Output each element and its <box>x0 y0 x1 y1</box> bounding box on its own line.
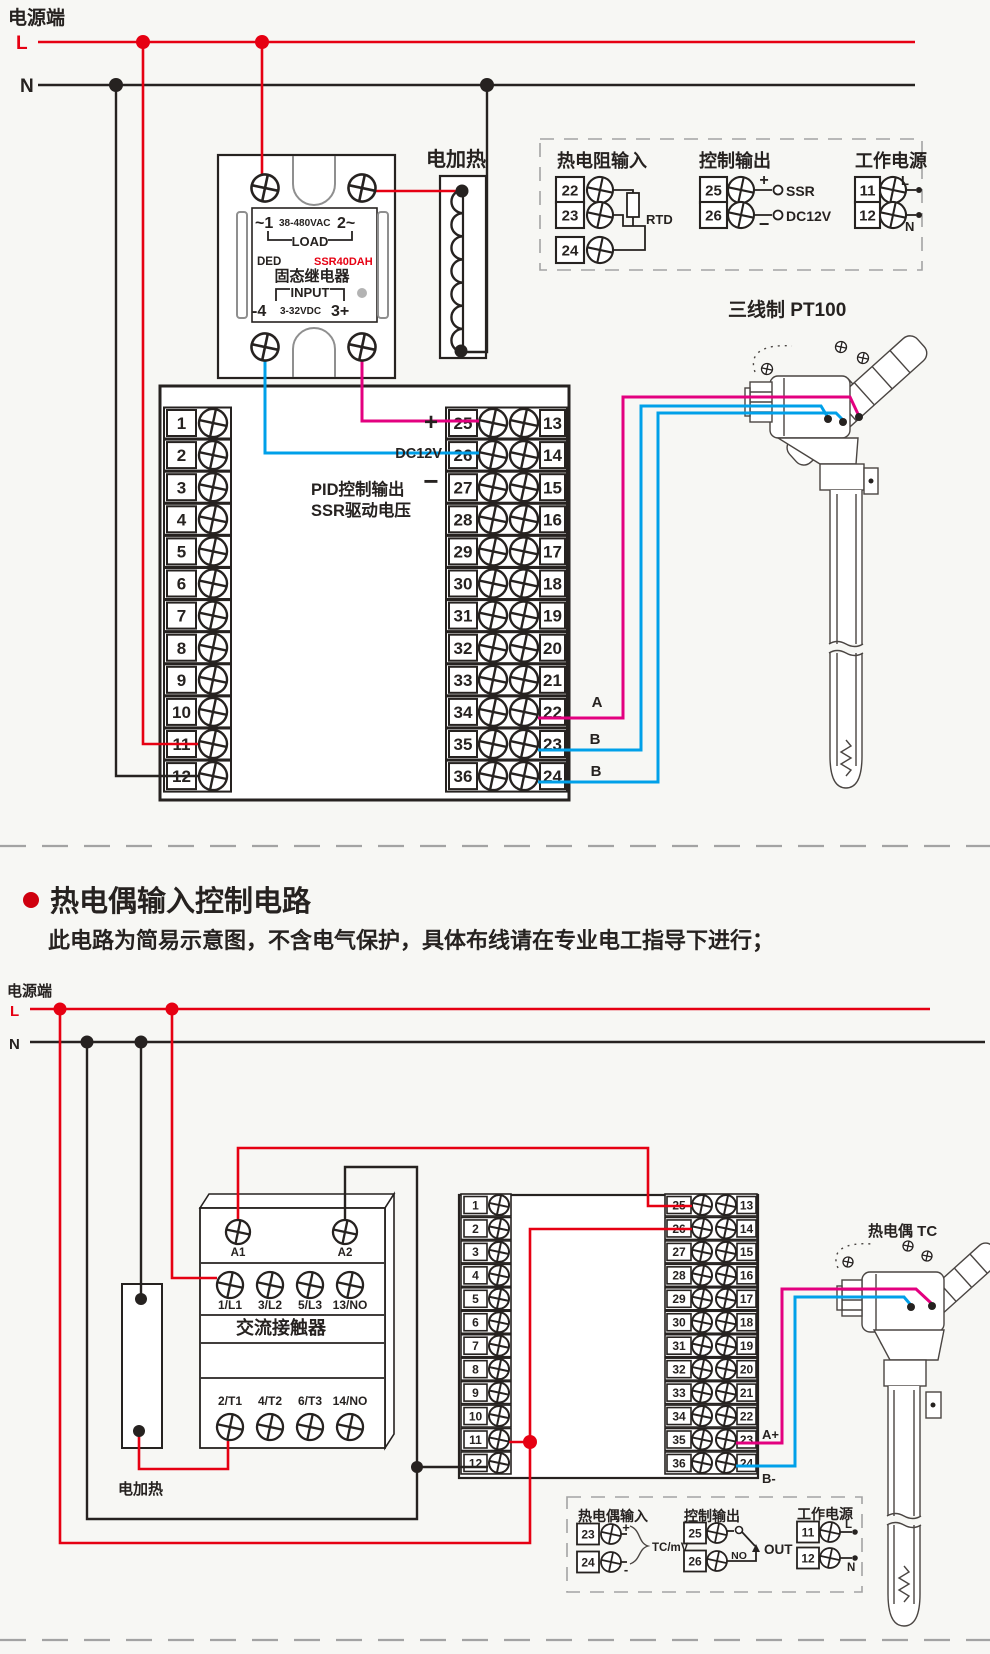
wire-aplus-label: A+ <box>762 1427 779 1442</box>
terminal-number: 10 <box>172 703 191 722</box>
terminal-number: 11 <box>469 1433 482 1447</box>
block-plus: + <box>424 409 438 436</box>
terminal-number: 30 <box>454 575 473 594</box>
terminal-number: 15 <box>543 478 562 497</box>
pwr-n-label: N <box>847 1562 855 1574</box>
terminal-number: 3 <box>472 1245 479 1259</box>
screw-icon <box>818 1546 842 1570</box>
contactor-terminal-label: 14/NO <box>333 1394 368 1408</box>
terminal-number: 17 <box>740 1292 754 1306</box>
terminal-number: 9 <box>472 1386 479 1400</box>
terminal-number: 30 <box>672 1316 686 1330</box>
no-label: NO <box>731 1550 747 1562</box>
screw-icon <box>856 351 869 364</box>
terminal-number: 36 <box>454 767 473 786</box>
l-label: L <box>10 1003 19 1020</box>
terminal-number: 20 <box>740 1362 754 1376</box>
sensor-wire-dot <box>839 418 847 426</box>
screw-icon <box>726 175 757 206</box>
terminal-number: 13 <box>740 1198 754 1212</box>
n-endpoint-icon <box>852 1555 858 1561</box>
junction-dot <box>109 78 123 92</box>
terminal-number: 12 <box>801 1551 815 1565</box>
terminal-number: 23 <box>581 1527 595 1541</box>
terminal-number: 10 <box>469 1409 483 1423</box>
switch-pivot-icon <box>736 1527 743 1534</box>
wire-b-label: B <box>591 763 602 780</box>
screw-icon <box>705 1521 729 1545</box>
terminal-number: 23 <box>562 207 579 224</box>
ssr-vdc: 3-32VDC <box>280 306 321 317</box>
junction-dot <box>166 1003 179 1016</box>
ssr-out-label: SSR <box>786 183 815 199</box>
minus-label: − <box>759 214 770 234</box>
heater-label: 电加热 <box>426 148 486 171</box>
section-title: 热电偶输入控制电路 <box>50 884 312 918</box>
plus-label: + <box>622 1520 630 1535</box>
bottom-circuit: 1251322614327154281652917630187311983220… <box>7 982 990 1626</box>
contactor-terminal-label: 13/NO <box>333 1298 368 1312</box>
terminal-number: 28 <box>454 510 473 529</box>
terminal-number: 27 <box>454 478 473 497</box>
wiring-diagram: 1251322614327154281652917630187311983220… <box>0 0 990 1654</box>
wire-b-label: B <box>590 731 601 748</box>
ssr-led-icon <box>357 288 367 298</box>
terminal-number: 34 <box>454 703 473 722</box>
terminal-number: 11 <box>860 182 876 199</box>
contactor-terminal-label: 4/T2 <box>258 1394 282 1408</box>
sensor-wire-dot <box>928 1302 936 1310</box>
heater-bottom <box>122 1284 162 1448</box>
contactor-terminal-label: 1/L1 <box>218 1298 242 1312</box>
pid-label-2: SSR驱动电压 <box>311 500 411 520</box>
n-label: N <box>20 76 34 97</box>
plus-label: + <box>759 172 768 189</box>
control-output-title: 控制输出 <box>684 1508 740 1524</box>
terminal-number: 17 <box>543 543 562 562</box>
terminal-number: 26 <box>688 1554 702 1568</box>
terminal-number: 21 <box>543 671 562 690</box>
terminal-number: 31 <box>454 607 473 626</box>
ssr-model: SSR40DAH <box>314 256 373 268</box>
tc-input-title: 热电偶输入 <box>578 1508 648 1524</box>
terminal-block-top: 1251322614327154281652917630187311983220… <box>160 386 569 800</box>
rtd-label: RTD <box>646 212 673 227</box>
terminal-number: 13 <box>543 414 562 433</box>
contactor-terminal-label: 3/L2 <box>258 1298 282 1312</box>
coil-a2-label: A2 <box>338 1247 353 1259</box>
terminal-number: 9 <box>177 671 186 690</box>
ssr-brand: DED <box>257 256 281 268</box>
terminal-number: 8 <box>177 639 186 658</box>
ssr-vac: 38-480VAC <box>279 218 331 229</box>
rtd-resistor-icon <box>627 193 639 217</box>
working-power-title: 工作电源 <box>855 150 927 171</box>
terminal-number: 25 <box>705 182 722 199</box>
screw-icon <box>585 200 616 231</box>
contactor-terminal-label: 2/T1 <box>218 1394 242 1408</box>
terminal-number: 35 <box>454 735 473 754</box>
screw-icon <box>599 1522 623 1546</box>
terminal-number: 2 <box>177 446 186 465</box>
screw-icon <box>585 235 616 266</box>
junction-dot <box>81 1036 94 1049</box>
tc-brace-icon <box>630 1526 648 1564</box>
wire-a-label: A <box>592 694 603 711</box>
terminal-number: 26 <box>454 446 473 465</box>
pt100-title: 三线制 PT100 <box>728 298 846 321</box>
l-label: L <box>16 33 28 54</box>
terminal-number: 19 <box>740 1339 754 1353</box>
heater-terminal-dot <box>135 1293 147 1305</box>
out-label: OUT <box>764 1542 793 1557</box>
pwr-l-label: L <box>901 173 909 188</box>
ssr-input: INPUT <box>291 285 330 300</box>
sensor-wire-dot <box>907 1303 915 1311</box>
terminal-number: 34 <box>672 1409 686 1423</box>
terminal-number: 14 <box>740 1222 754 1236</box>
terminal-number: 3 <box>177 478 186 497</box>
ssr-dc2: 3+ <box>331 303 349 320</box>
terminal-number: 4 <box>177 510 187 529</box>
terminal-number: 6 <box>177 575 186 594</box>
terminal-number: 32 <box>454 639 473 658</box>
block-dc12v: DC12V <box>395 446 442 462</box>
terminal-number: 33 <box>672 1386 686 1400</box>
pt100-probe <box>830 490 862 788</box>
screw-icon <box>842 1256 854 1268</box>
tc-neck <box>874 1330 944 1360</box>
screw-icon <box>902 1240 914 1252</box>
pid-label-1: PID控制输出 <box>311 479 405 499</box>
terminal-number: 36 <box>672 1456 686 1470</box>
terminal-number: 15 <box>740 1245 754 1259</box>
terminal-number: 26 <box>705 207 722 224</box>
wire-bminus-label: B- <box>762 1471 776 1486</box>
coil-a1-label: A1 <box>231 1247 246 1259</box>
l-endpoint-icon <box>852 1529 858 1535</box>
terminal-number: 33 <box>454 671 473 690</box>
junction-dot <box>255 35 269 49</box>
terminal-number: 1 <box>177 414 186 433</box>
screw-icon <box>585 175 616 206</box>
terminal-number: 2 <box>472 1222 479 1236</box>
terminal-number: 24 <box>740 1456 754 1470</box>
terminal-number: 24 <box>562 242 579 259</box>
terminal-number: 5 <box>472 1292 479 1306</box>
pwr-n-label: N <box>905 219 914 234</box>
ssr-ac2: 2~ <box>337 215 355 232</box>
screw-icon <box>726 200 757 231</box>
terminal-number: 4 <box>472 1269 479 1283</box>
terminal-number: 7 <box>177 607 186 626</box>
terminal-number: 22 <box>562 182 579 199</box>
contactor-terminal-label: 5/L3 <box>298 1298 322 1312</box>
sensor-wire-dot <box>824 415 832 423</box>
terminal-number: 32 <box>672 1362 686 1376</box>
terminal-number: 20 <box>543 639 562 658</box>
terminal-number: 22 <box>740 1409 754 1423</box>
terminal-number: 24 <box>581 1555 595 1569</box>
switch-blade-icon <box>742 1532 755 1546</box>
terminal-number: 12 <box>859 207 876 224</box>
junction-dot <box>523 1435 537 1449</box>
terminal-number: 16 <box>740 1269 754 1283</box>
terminal-number: 6 <box>472 1316 479 1330</box>
l-endpoint-icon <box>916 187 922 193</box>
junction-dot <box>411 1461 423 1473</box>
terminal-number: 29 <box>454 543 473 562</box>
screw-icon <box>834 340 847 353</box>
terminal-number: 28 <box>672 1269 686 1283</box>
control-output-title: 控制输出 <box>699 150 771 171</box>
terminal-number: 14 <box>543 446 562 465</box>
rtd-input-title: 热电阻输入 <box>557 150 647 171</box>
terminal-number: 21 <box>740 1386 754 1400</box>
minus-label: - <box>624 1562 628 1577</box>
tc-sensor <box>836 1235 990 1626</box>
screw-icon <box>878 200 909 231</box>
terminal-number: 19 <box>543 607 562 626</box>
dc12v-out-label: DC12V <box>786 208 832 224</box>
terminal-number: 5 <box>177 543 186 562</box>
block-minus: − <box>423 466 438 496</box>
heater-terminal-dot <box>133 1425 145 1437</box>
heater-label: 电加热 <box>118 1480 163 1498</box>
tc-title: 热电偶 TC <box>868 1222 937 1240</box>
section-subtitle: 此电路为简易示意图，不含电气保护，具体布线请在专业电工指导下进行； <box>48 928 774 953</box>
power-terminal-label: 电源端 <box>8 6 65 29</box>
n-label: N <box>9 1036 20 1053</box>
tc-mv-label: TC/mV <box>652 1542 689 1554</box>
pwr-l-label: L <box>845 1519 852 1531</box>
terminal-block-bottom: 1251322614327154281652917630187311983220… <box>459 1193 758 1478</box>
screw-icon <box>921 1250 933 1262</box>
junction-dot <box>136 35 150 49</box>
junction-dot <box>135 1036 148 1049</box>
terminal-number: 16 <box>543 510 562 529</box>
terminal-number: 18 <box>740 1316 754 1330</box>
junction-dot <box>480 78 494 92</box>
sensor-wire-dot <box>855 413 863 421</box>
screw-icon <box>705 1549 729 1573</box>
terminal-number: 27 <box>672 1245 686 1259</box>
terminal-number: 35 <box>672 1433 686 1447</box>
terminal-number: 29 <box>672 1292 686 1306</box>
dc12v-terminal-icon <box>774 211 783 220</box>
terminal-number: 8 <box>472 1362 479 1376</box>
terminal-number: 25 <box>454 414 473 433</box>
terminal-number: 23 <box>740 1433 754 1447</box>
screw-icon <box>818 1520 842 1544</box>
ssr-terminal-icon <box>774 186 783 195</box>
n-endpoint-icon <box>916 212 922 218</box>
terminal-number: 31 <box>672 1339 686 1353</box>
contactor-terminal-label: 6/T3 <box>298 1394 322 1408</box>
terminal-number: 25 <box>688 1526 702 1540</box>
contactor-name: 交流接触器 <box>236 1317 327 1338</box>
ssr-dc1: -4 <box>252 303 266 320</box>
terminal-number: 18 <box>543 575 562 594</box>
screw-icon <box>599 1550 623 1574</box>
terminal-number: 11 <box>802 1525 815 1539</box>
terminal-number: 1 <box>472 1198 479 1212</box>
terminal-number: 7 <box>472 1339 479 1353</box>
screw-icon <box>760 362 773 375</box>
junction-dot <box>54 1003 67 1016</box>
tc-probe <box>888 1386 920 1626</box>
ssr-name: 固态继电器 <box>274 267 350 285</box>
ssr-ac1: ~1 <box>255 215 273 232</box>
ssr-load: LOAD <box>292 234 329 249</box>
bullet-icon <box>23 892 39 908</box>
power-terminal-label: 电源端 <box>7 982 52 1000</box>
